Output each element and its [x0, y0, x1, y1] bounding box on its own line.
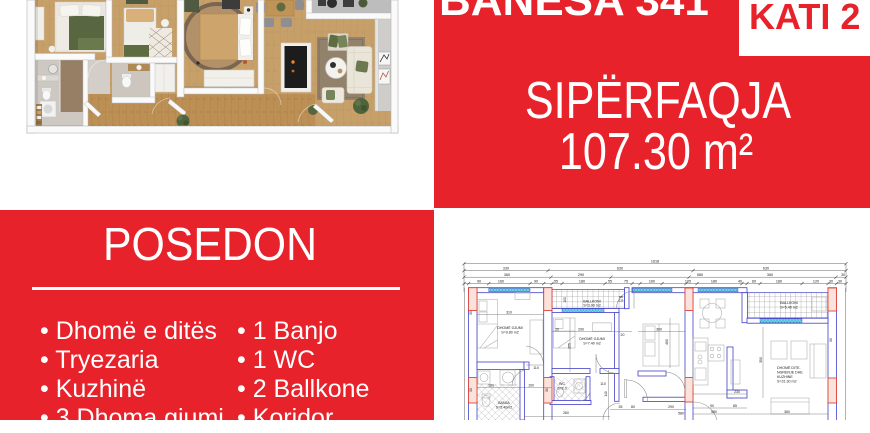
svg-text:S=3.00 m2: S=3.00 m2 — [583, 304, 600, 308]
svg-text:350: 350 — [759, 357, 763, 363]
svg-text:30: 30 — [838, 279, 842, 283]
svg-text:160: 160 — [498, 279, 504, 283]
svg-text:30: 30 — [469, 311, 473, 315]
svg-text:DHOMË GJUMI: DHOMË GJUMI — [579, 337, 605, 341]
svg-text:255: 255 — [568, 343, 572, 349]
svg-text:360: 360 — [767, 273, 773, 277]
svg-text:290: 290 — [578, 273, 584, 277]
svg-text:90: 90 — [477, 279, 481, 283]
svg-text:BALLKONI: BALLKONI — [780, 301, 798, 305]
svg-text:30: 30 — [829, 338, 833, 342]
svg-text:S=2.0: S=2.0 — [557, 387, 567, 391]
svg-text:DHOMË DITE,: DHOMË DITE, — [777, 366, 801, 370]
svg-text:55: 55 — [554, 279, 558, 283]
svg-text:S=7.40 m2: S=7.40 m2 — [583, 342, 600, 346]
svg-text:20: 20 — [621, 333, 625, 337]
svg-text:100: 100 — [563, 297, 567, 303]
svg-text:230: 230 — [734, 390, 740, 394]
svg-text:1618: 1618 — [651, 259, 659, 263]
svg-text:S=9.80 m2: S=9.80 m2 — [501, 331, 518, 335]
svg-text:120: 120 — [813, 279, 819, 283]
svg-text:30: 30 — [545, 388, 549, 392]
svg-text:300: 300 — [656, 328, 662, 332]
svg-text:35: 35 — [619, 405, 623, 409]
svg-text:360: 360 — [784, 410, 790, 414]
svg-text:580: 580 — [678, 412, 684, 416]
svg-text:30: 30 — [829, 279, 833, 283]
svg-text:580: 580 — [711, 410, 717, 414]
svg-text:290: 290 — [668, 405, 674, 409]
svg-text:290: 290 — [578, 328, 584, 332]
svg-text:180: 180 — [579, 279, 585, 283]
svg-text:S=31.30 m2: S=31.30 m2 — [777, 380, 796, 384]
svg-text:105: 105 — [685, 279, 691, 283]
svg-text:310: 310 — [506, 311, 512, 315]
svg-text:160: 160 — [649, 279, 655, 283]
svg-text:20: 20 — [555, 328, 559, 332]
svg-text:40: 40 — [738, 279, 742, 283]
svg-text:80: 80 — [631, 405, 635, 409]
svg-text:239: 239 — [619, 299, 624, 303]
svg-text:110: 110 — [600, 382, 606, 386]
svg-text:630: 630 — [617, 266, 623, 270]
svg-text:S=5.40 m2: S=5.40 m2 — [780, 306, 797, 310]
svg-text:90: 90 — [710, 404, 714, 408]
svg-text:KUZHINE: KUZHINE — [777, 375, 793, 379]
svg-text:180: 180 — [488, 384, 494, 388]
svg-text:630: 630 — [763, 266, 769, 270]
svg-text:S=5.40m2: S=5.40m2 — [496, 406, 512, 410]
svg-text:460: 460 — [665, 339, 669, 345]
svg-text:180: 180 — [776, 279, 782, 283]
svg-text:DHOMË GJUMI: DHOMË GJUMI — [497, 326, 523, 330]
svg-text:WC: WC — [559, 382, 565, 386]
svg-text:330: 330 — [503, 266, 509, 270]
svg-text:360: 360 — [504, 273, 510, 277]
svg-text:580: 580 — [697, 273, 703, 277]
svg-text:180: 180 — [711, 279, 717, 283]
svg-text:55: 55 — [608, 279, 612, 283]
svg-text:90: 90 — [534, 279, 538, 283]
svg-text:30: 30 — [469, 388, 473, 392]
svg-text:140: 140 — [604, 391, 608, 397]
svg-text:BANJA: BANJA — [498, 401, 510, 405]
svg-text:85: 85 — [733, 404, 737, 408]
svg-text:75: 75 — [624, 279, 628, 283]
svg-text:110: 110 — [533, 366, 539, 370]
svg-text:NGRENJE DHE: NGRENJE DHE — [777, 371, 803, 375]
svg-text:60: 60 — [752, 279, 756, 283]
svg-text:260: 260 — [563, 411, 569, 415]
svg-text:100: 100 — [528, 384, 534, 388]
svg-text:30: 30 — [841, 273, 845, 277]
